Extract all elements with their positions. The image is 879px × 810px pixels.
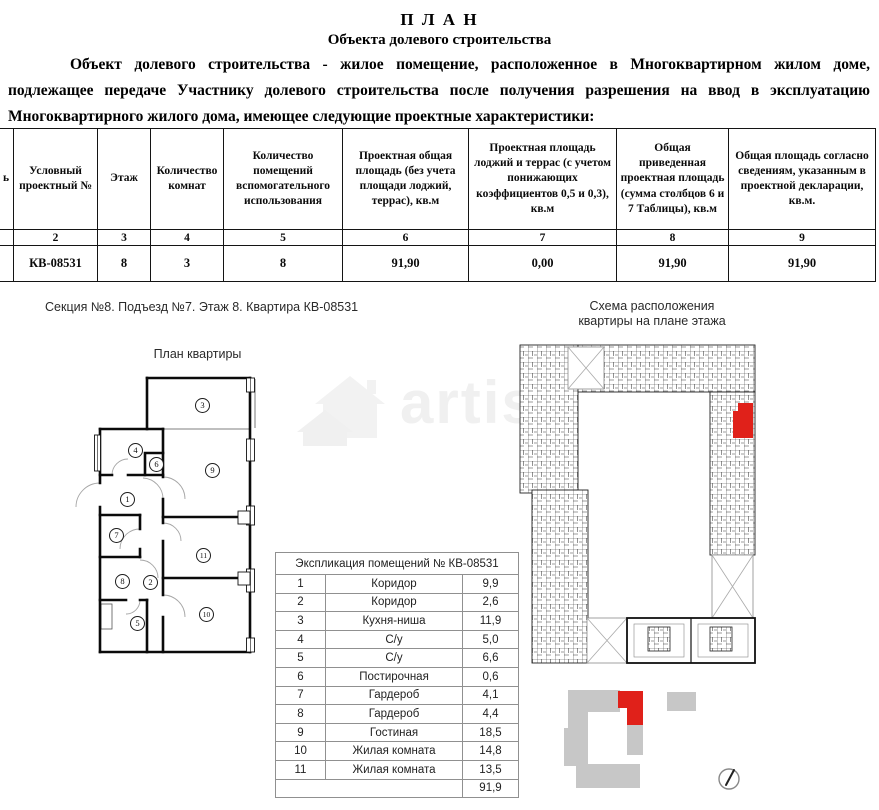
room-name: Гардероб — [326, 686, 463, 705]
room-name: Постирочная — [326, 667, 463, 686]
room-name: Коридор — [326, 575, 463, 594]
value-cell: 91,90 — [617, 246, 729, 282]
doc-paragraph: Объект долевого строительства - жилое по… — [8, 52, 870, 130]
room-area: 18,5 — [463, 723, 519, 742]
site-plan-drawing — [556, 682, 786, 797]
header-cell: ь — [0, 129, 14, 230]
value-cell: 91,90 — [343, 246, 469, 282]
room-area: 6,6 — [463, 649, 519, 668]
header-cell: Общая приведенная проектная площадь (сум… — [617, 129, 729, 230]
room-area: 4,1 — [463, 686, 519, 705]
room-name: Гардероб — [326, 705, 463, 724]
value-cell: 8 — [98, 246, 151, 282]
explication-row: 3 Кухня-ниша 11,9 — [276, 612, 519, 631]
number-cell: 9 — [729, 230, 876, 246]
table-header-row: ь Условный проектный № Этаж Количество к… — [0, 129, 876, 230]
value-cell — [0, 246, 14, 282]
paragraph-line: Объект долевого строительства - жилое по… — [8, 52, 870, 78]
doc-title: П Л А Н — [0, 10, 879, 30]
scheme-label-line: квартиры на плане этажа — [543, 314, 761, 329]
number-cell: 3 — [98, 230, 151, 246]
scheme-label-line: Схема расположения — [543, 299, 761, 314]
table-number-row: 2 3 4 5 6 7 8 9 — [0, 230, 876, 246]
room-name: Жилая комната — [326, 760, 463, 779]
room-area: 13,5 — [463, 760, 519, 779]
room-no: 3 — [276, 612, 326, 631]
highlighted-section — [618, 691, 643, 725]
floor-scheme-label: Схема расположения квартиры на плане эта… — [543, 299, 761, 329]
header-cell: Проектная общая площадь (без учета площа… — [343, 129, 469, 230]
header-cell: Проектная площадь лоджий и террас (с уче… — [469, 129, 617, 230]
room-area: 5,0 — [463, 630, 519, 649]
room-name: С/у — [326, 630, 463, 649]
room-number: 5 — [130, 616, 145, 631]
room-name: Кухня-ниша — [326, 612, 463, 631]
room-no: 11 — [276, 760, 326, 779]
explication-row: 9 Гостиная 18,5 — [276, 723, 519, 742]
explication-row: 7 Гардероб 4,1 — [276, 686, 519, 705]
room-number: 2 — [143, 575, 158, 590]
room-number: 7 — [109, 528, 124, 543]
section-label: Секция №8. Подъезд №7. Этаж 8. Квартира … — [45, 300, 358, 314]
room-name: Коридор — [326, 593, 463, 612]
explication-row: 5 С/у 6,6 — [276, 649, 519, 668]
header-cell: Общая площадь согласно сведениям, указан… — [729, 129, 876, 230]
explication-total-row: 91,9 — [276, 779, 519, 798]
explication-row: 1 Коридор 9,9 — [276, 575, 519, 594]
value-cell: 0,00 — [469, 246, 617, 282]
room-number: 4 — [128, 443, 143, 458]
document-page: П Л А Н Объекта долевого строительства О… — [0, 0, 879, 810]
room-number: 3 — [195, 398, 210, 413]
number-cell: 2 — [14, 230, 98, 246]
number-cell: 7 — [469, 230, 617, 246]
room-area: 4,4 — [463, 705, 519, 724]
room-area: 9,9 — [463, 575, 519, 594]
room-no: 9 — [276, 723, 326, 742]
characteristics-table: ь Условный проектный № Этаж Количество к… — [0, 128, 876, 282]
room-no: 5 — [276, 649, 326, 668]
room-area: 2,6 — [463, 593, 519, 612]
room-no: 6 — [276, 667, 326, 686]
apartment-floor-plan: 1 2 3 4 5 6 7 8 9 10 11 — [70, 365, 280, 665]
room-area: 11,9 — [463, 612, 519, 631]
explication-row: 4 С/у 5,0 — [276, 630, 519, 649]
table-data-row: КВ-08531 8 3 8 91,90 0,00 91,90 91,90 — [0, 246, 876, 282]
explication-title-row: Экспликация помещений № КВ-08531 — [276, 553, 519, 575]
floor-plan-drawing — [70, 365, 280, 665]
header-cell: Этаж — [98, 129, 151, 230]
explication-row: 8 Гардероб 4,4 — [276, 705, 519, 724]
room-name: Гостиная — [326, 723, 463, 742]
value-cell: 91,90 — [729, 246, 876, 282]
explication-title: Экспликация помещений № КВ-08531 — [276, 553, 519, 575]
number-cell: 4 — [151, 230, 224, 246]
value-cell: 8 — [224, 246, 343, 282]
explication-row: 10 Жилая комната 14,8 — [276, 742, 519, 761]
room-number: 11 — [196, 548, 211, 563]
value-cell: 3 — [151, 246, 224, 282]
paragraph-line: Многоквартирного жилого дома, имеющее сл… — [8, 104, 870, 130]
header-cell: Условный проектный № — [14, 129, 98, 230]
room-number: 10 — [199, 607, 214, 622]
room-no: 4 — [276, 630, 326, 649]
apartment-plan-label: План квартиры — [105, 347, 290, 361]
explication-table: Экспликация помещений № КВ-08531 1 Корид… — [275, 552, 519, 798]
room-area: 14,8 — [463, 742, 519, 761]
room-no: 10 — [276, 742, 326, 761]
room-area: 0,6 — [463, 667, 519, 686]
explication-row: 11 Жилая комната 13,5 — [276, 760, 519, 779]
room-no: 1 — [276, 575, 326, 594]
room-name: Жилая комната — [326, 742, 463, 761]
room-number: 1 — [120, 492, 135, 507]
floor-scheme-drawing — [510, 340, 770, 670]
explication-row: 2 Коридор 2,6 — [276, 593, 519, 612]
total-area: 91,9 — [463, 779, 519, 798]
room-no: 2 — [276, 593, 326, 612]
number-cell — [0, 230, 14, 246]
number-cell: 5 — [224, 230, 343, 246]
explication-row: 6 Постирочная 0,6 — [276, 667, 519, 686]
site-plan — [556, 682, 786, 797]
room-no: 8 — [276, 705, 326, 724]
room-name: С/у — [326, 649, 463, 668]
doc-subtitle: Объекта долевого строительства — [0, 32, 879, 49]
building-floor-scheme — [510, 340, 770, 670]
room-number: 9 — [205, 463, 220, 478]
value-cell: КВ-08531 — [14, 246, 98, 282]
paragraph-line: подлежащее передаче Участнику долевого с… — [8, 78, 870, 104]
room-no: 7 — [276, 686, 326, 705]
header-cell: Количество помещений вспомогательного ис… — [224, 129, 343, 230]
room-number: 6 — [149, 457, 164, 472]
number-cell: 8 — [617, 230, 729, 246]
header-cell: Количество комнат — [151, 129, 224, 230]
total-spacer — [276, 779, 463, 798]
number-cell: 6 — [343, 230, 469, 246]
room-number: 8 — [115, 574, 130, 589]
